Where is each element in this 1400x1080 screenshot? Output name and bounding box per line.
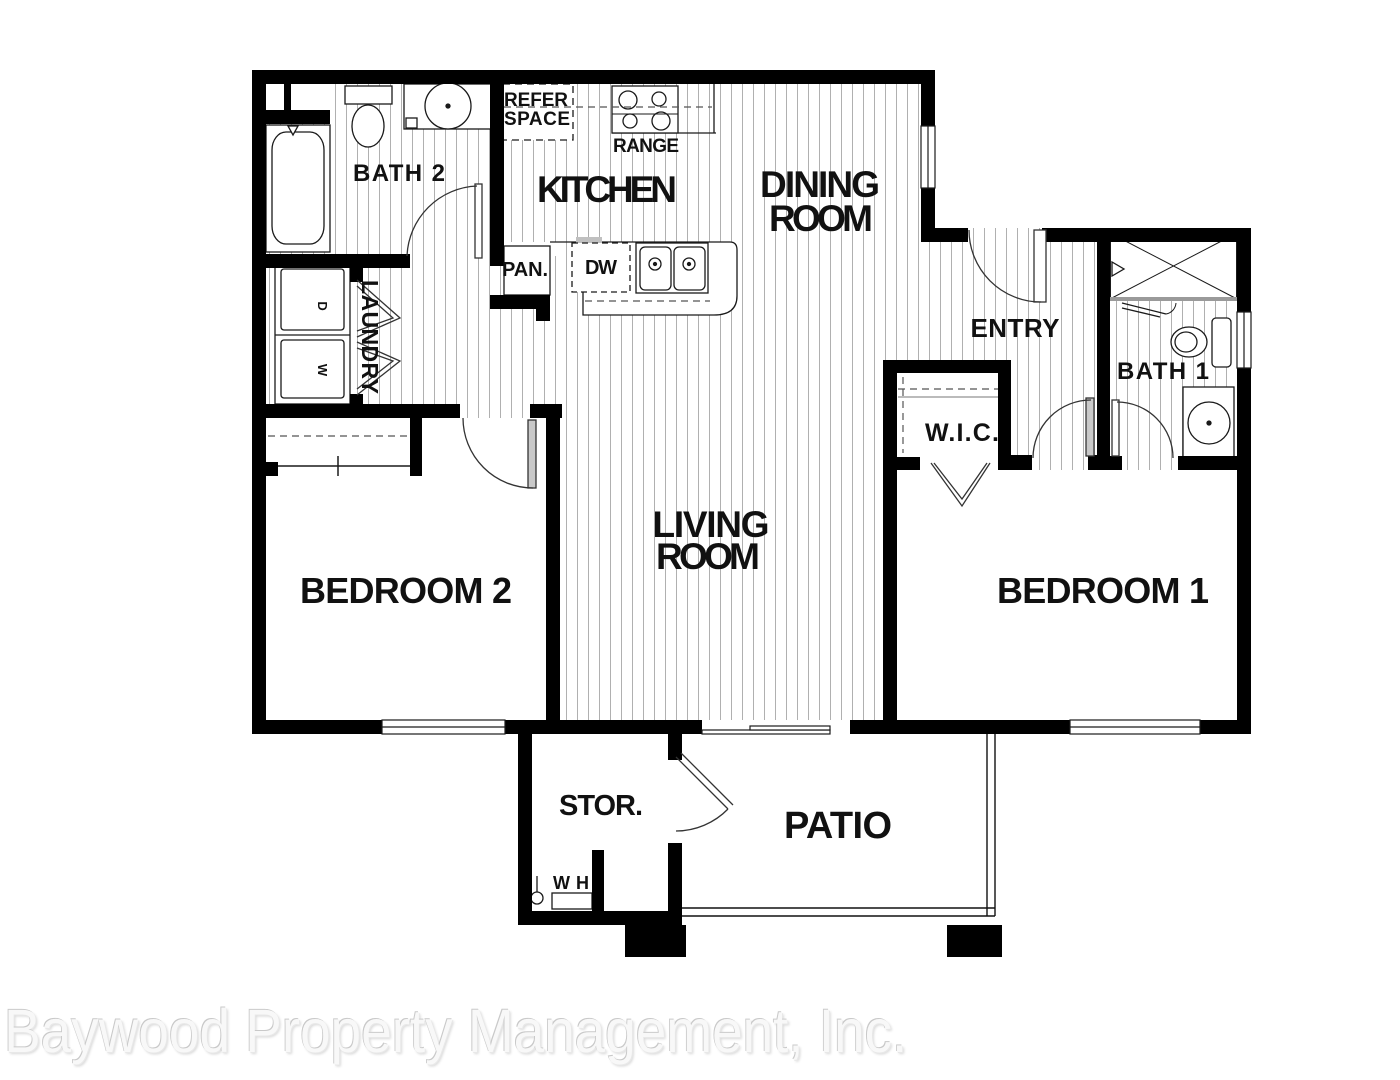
washer-dryer-icon: [275, 262, 350, 404]
label-bedroom2: BEDROOM 2: [300, 570, 512, 611]
wall-bath1-bottom-left: [1110, 456, 1122, 470]
label-wic: W.I.C.: [925, 419, 999, 447]
label-living-line2: ROOM: [656, 536, 760, 577]
label-refer-line2: SPACE: [504, 109, 570, 130]
label-refer-line1: REFER: [504, 90, 568, 111]
window-bath1: [1237, 312, 1251, 368]
front-door-threshold-floor: [966, 228, 1042, 242]
bath1-doorway-floor: [1122, 456, 1178, 470]
wall-wic-north: [883, 360, 1011, 373]
wic-interior: [880, 360, 1011, 470]
label-entry: ENTRY: [971, 313, 1060, 343]
bedroom2-door: [463, 418, 536, 488]
storage-door: [676, 753, 733, 831]
wall-bottom-bedroom2-left: [252, 720, 382, 734]
label-washer: W: [315, 364, 330, 377]
closet-wall-right: [410, 418, 422, 476]
label-dryer: D: [315, 301, 330, 310]
wall-wic-south-left: [883, 457, 920, 470]
wall-bottom-center-right: [850, 720, 1070, 734]
wall-bath1-bottom-right: [1178, 456, 1251, 470]
label-patio: PATIO: [784, 805, 892, 847]
wall-water-heater-stub: [592, 850, 604, 917]
range-icon: [612, 86, 678, 133]
label-water-heater: WH: [553, 873, 589, 893]
wall-storage-east-upper: [668, 734, 682, 760]
floor-plan-page: BATH 2 KITCHEN DINING ROOM ENTRY BATH 1 …: [0, 0, 1400, 1080]
label-storage: STOR.: [559, 790, 643, 822]
closet-jamb-left: [264, 462, 278, 476]
wall-entry-top-right: [1042, 228, 1251, 242]
wall-left: [252, 70, 266, 734]
wall-living-west: [546, 404, 560, 722]
wall-entry-top-left: [921, 228, 968, 242]
patio-post-right: [947, 925, 1002, 957]
wall-top: [252, 70, 935, 84]
wall-kitchen-west: [490, 84, 504, 266]
bedroom1-doorway-floor: [1032, 455, 1088, 470]
label-laundry: LAUNDRY: [357, 280, 383, 394]
label-dishwasher: DW: [585, 257, 617, 279]
watermark-text: Baywood Property Management, Inc.: [4, 996, 907, 1066]
floor-plan-drawing: BATH 2 KITCHEN DINING ROOM ENTRY BATH 1 …: [0, 0, 1400, 1080]
kitchen-sink-icon: [636, 243, 708, 293]
wall-bottom-center-left: [505, 720, 702, 734]
wall-bath2-south: [252, 254, 410, 268]
wall-wic-east: [998, 373, 1011, 470]
wall-bedroom1-north-left: [1011, 455, 1032, 470]
dining-entry-connector-floor: [880, 242, 894, 360]
wall-bedroom1-west: [883, 360, 897, 722]
bath1-sink: [1183, 387, 1234, 465]
wall-pantry-stub: [536, 309, 550, 321]
window-bedroom1: [1070, 720, 1200, 734]
label-dining-line2: ROOM: [769, 198, 873, 239]
wall-bedroom1-north-jamb: [1088, 455, 1097, 470]
label-bath2: BATH 2: [353, 160, 445, 187]
wall-storage-east-lower: [668, 843, 682, 917]
wall-right-lower: [1237, 368, 1251, 734]
wall-bedroom2-north: [252, 404, 460, 418]
label-pantry: PAN.: [502, 259, 548, 281]
patio-post-left: [625, 925, 686, 957]
label-range: RANGE: [613, 136, 679, 157]
sliding-glass-door: [702, 720, 850, 734]
window-bedroom2: [382, 720, 505, 734]
bath2-sink: [404, 83, 497, 129]
bathtub: [266, 125, 330, 252]
window-dining: [921, 126, 935, 188]
label-bedroom1: BEDROOM 1: [997, 570, 1209, 611]
label-bath1: BATH 1: [1117, 358, 1209, 385]
wall-bath1-west: [1097, 228, 1110, 470]
wall-storage-west: [518, 734, 532, 925]
label-kitchen: KITCHEN: [537, 169, 677, 210]
wall-pantry-south: [490, 295, 550, 309]
wall-dining-east-upper: [921, 70, 935, 126]
